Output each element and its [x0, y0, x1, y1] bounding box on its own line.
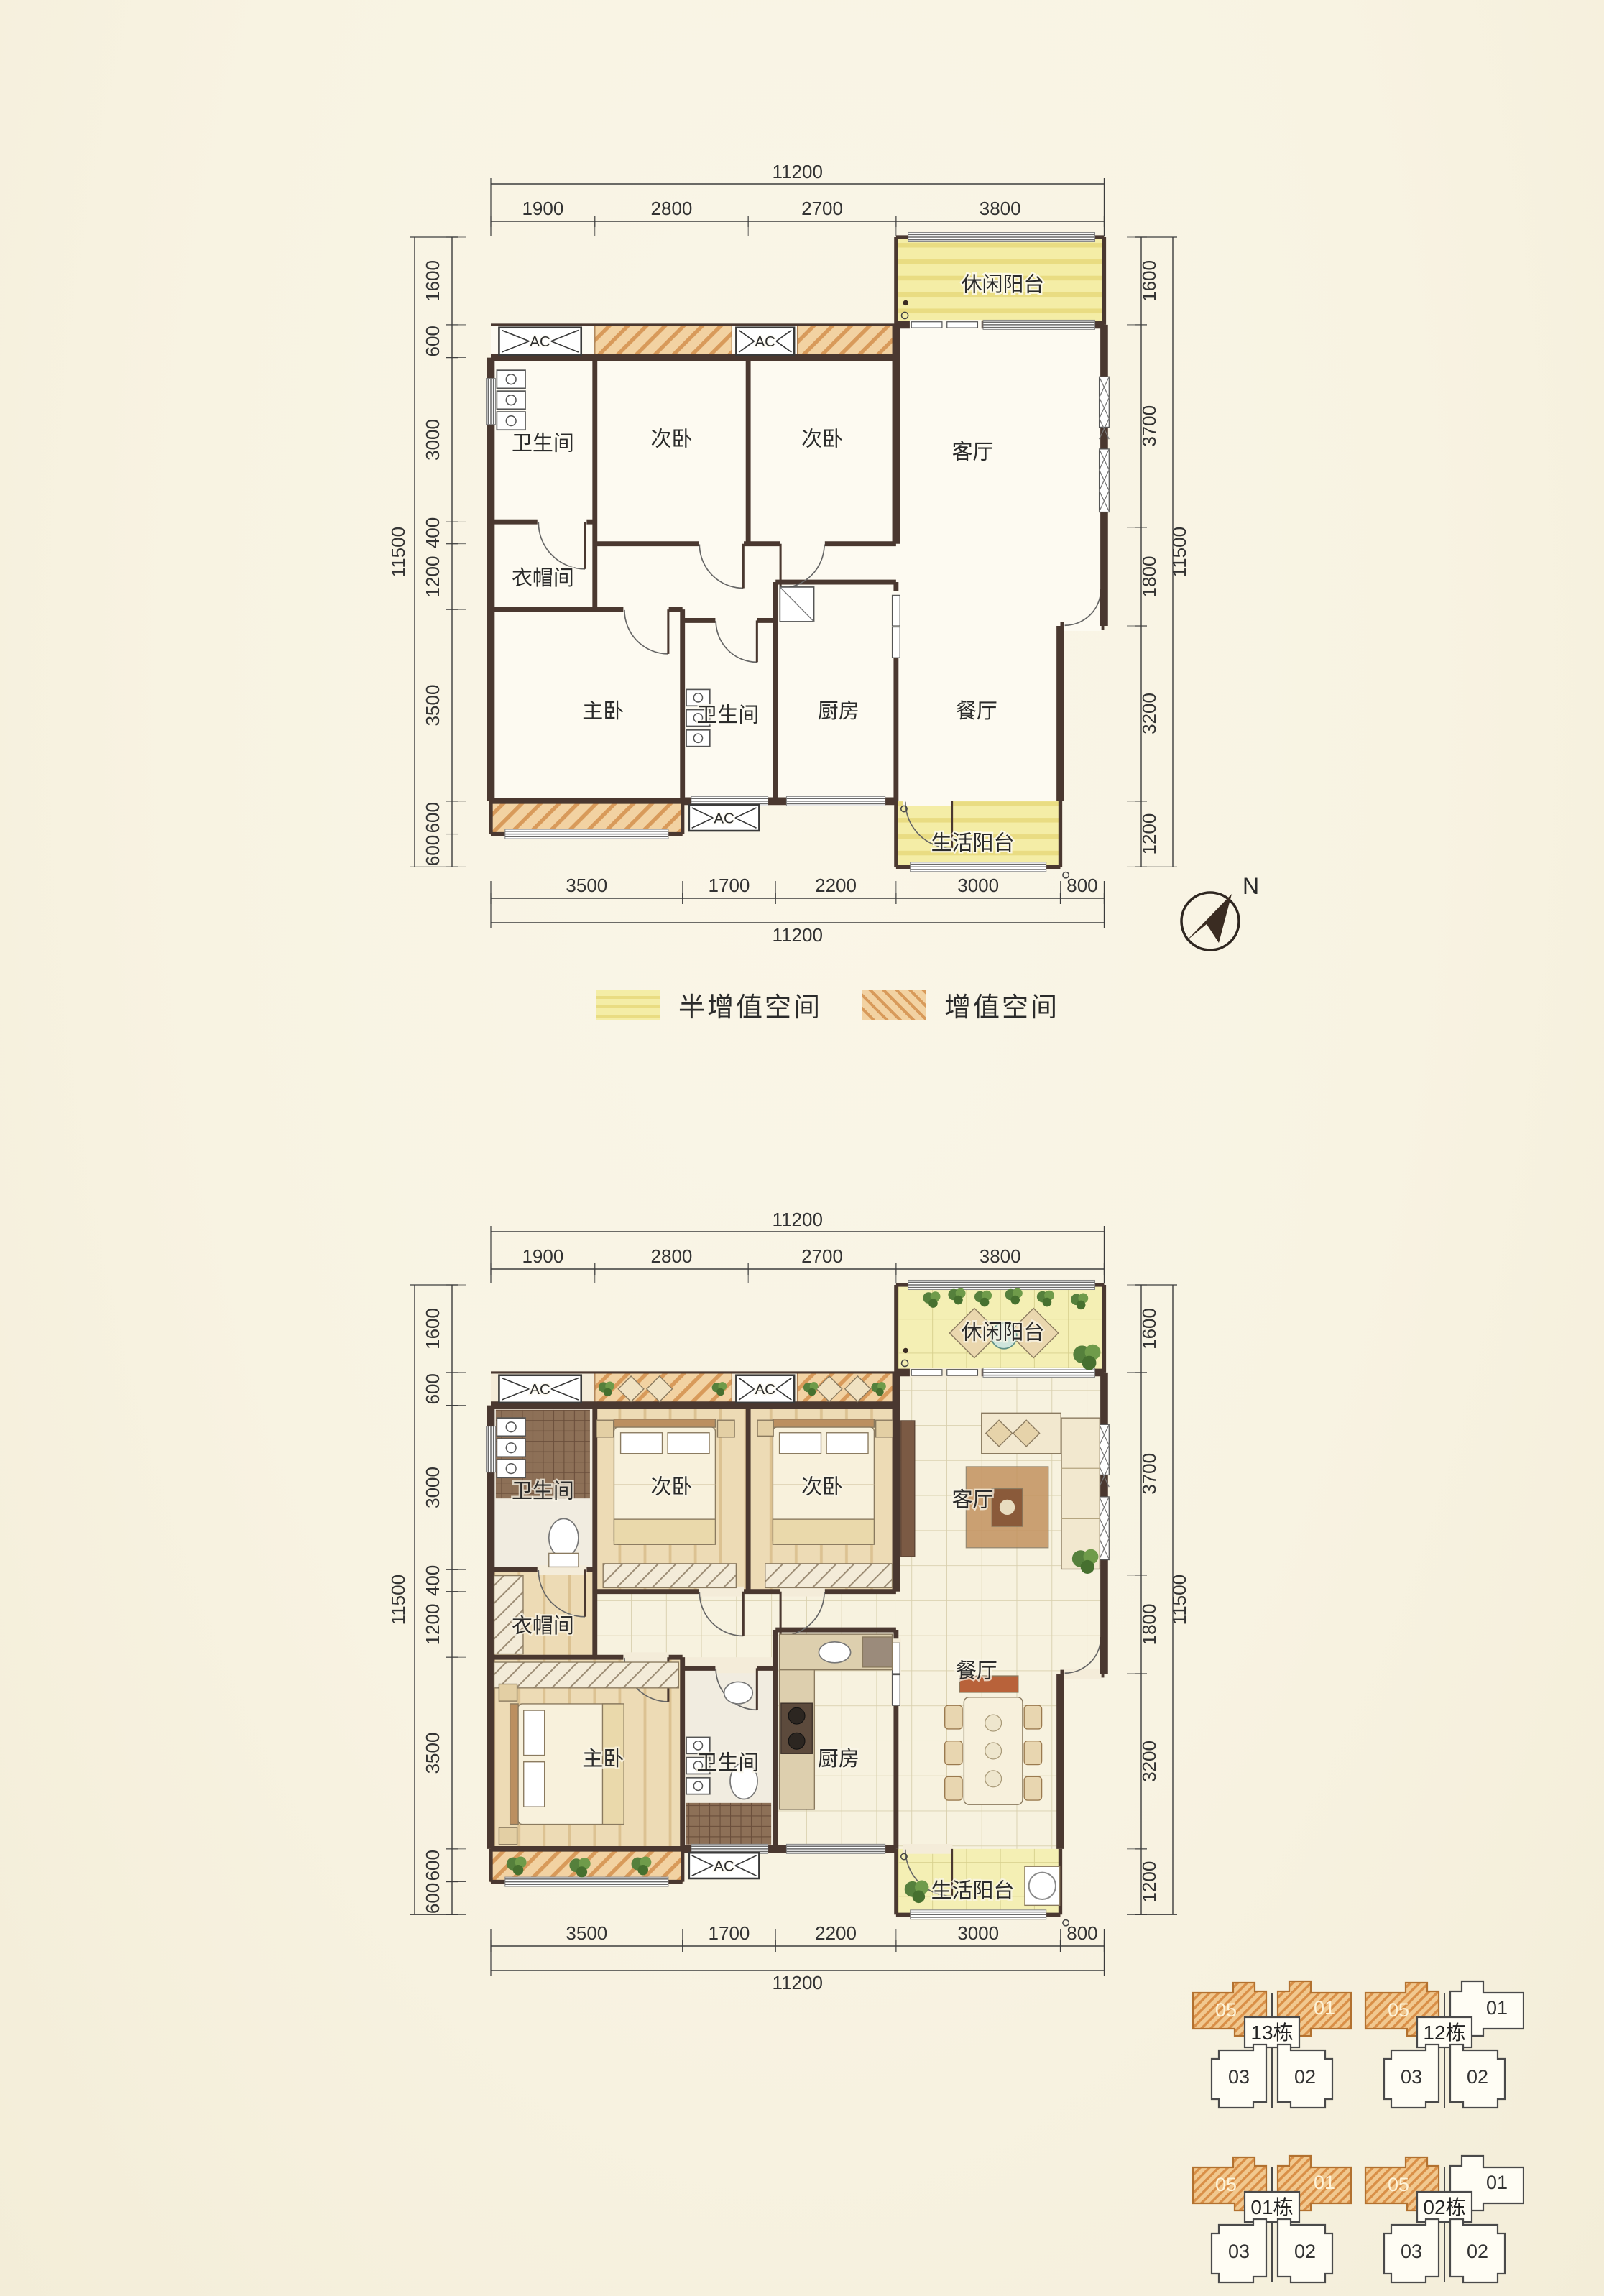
dim-left-seg: 3500 [422, 685, 443, 727]
room-label-master_bedroom: 主卧 [582, 1748, 624, 1771]
room-label-master_bedroom: 主卧 [582, 700, 624, 723]
floor-plan-furnished: ACACAC休闲阳台卫生间次卧次卧客厅衣帽间主卧卫生间厨房餐厅生活阳台11200… [304, 1163, 1209, 2004]
dim-top-seg: 1900 [522, 198, 563, 219]
legend-swatch-value [862, 990, 926, 1020]
site-building-name: 01栋 [1250, 2196, 1293, 2218]
dim-left-seg: 3000 [422, 1467, 443, 1508]
dim-top-seg: 2700 [801, 1245, 843, 1267]
dim-left-seg: 600 [422, 326, 443, 356]
furnished-plan-drawing: ACACAC休闲阳台卫生间次卧次卧客厅衣帽间主卧卫生间厨房餐厅生活阳台 [487, 1281, 1110, 1926]
dim-left-total: 11500 [387, 527, 409, 577]
ac-unit-label: AC [714, 1858, 734, 1874]
dim-right-total: 11500 [1169, 1575, 1190, 1625]
dim-top-total: 11200 [773, 1209, 823, 1230]
dim-left-seg: 400 [422, 1565, 443, 1596]
legend-label-semi-value: 半增值空间 [678, 985, 822, 1024]
north-label: N [1243, 873, 1259, 899]
site-unit-number: 03 [1228, 2066, 1250, 2088]
dim-left-seg: 600 [422, 835, 443, 866]
dim-right-seg: 1200 [1138, 1861, 1160, 1903]
dim-bottom-seg: 2200 [815, 875, 857, 896]
dim-bottom-seg: 1700 [709, 875, 750, 896]
room-label-dining_room: 餐厅 [956, 1659, 997, 1682]
room-label-leisure_balcony: 休闲阳台 [962, 273, 1045, 296]
room-label-bathroom: 卫生间 [512, 1480, 574, 1503]
value-added-bay [595, 325, 732, 358]
site-unit-number: 02 [1467, 2066, 1488, 2088]
dim-right-seg: 3700 [1138, 405, 1160, 447]
room-label-bathroom: 卫生间 [512, 432, 574, 455]
room-label-utility_balcony: 生活阳台 [931, 1880, 1015, 1903]
site-unit-number: 05 [1215, 2174, 1237, 2195]
site-unit-number: 01 [1314, 2172, 1335, 2193]
legend: 半增值空间 增值空间 [596, 982, 1059, 1028]
site-unit-number: 01 [1486, 2172, 1508, 2193]
ac-unit-label: AC [755, 1381, 775, 1398]
dim-left-seg: 1200 [422, 1604, 443, 1646]
schematic-plan-drawing: ACACAC休闲阳台卫生间次卧次卧客厅衣帽间主卧卫生间厨房餐厅生活阳台 [487, 233, 1110, 878]
dim-left-seg: 3000 [422, 419, 443, 461]
site-unit-number: 03 [1401, 2241, 1422, 2262]
dim-top-seg: 2700 [801, 198, 843, 219]
site-unit-number: 01 [1486, 1997, 1508, 2019]
room-label-secondary_bedroom: 次卧 [801, 428, 843, 451]
room-label-secondary_bedroom: 次卧 [651, 1475, 693, 1498]
ac-unit-label: AC [530, 333, 550, 350]
room-label-utility_balcony: 生活阳台 [931, 832, 1015, 855]
dim-top-seg: 1900 [522, 1245, 563, 1267]
dim-left-seg: 600 [422, 802, 443, 833]
dim-left-seg: 1600 [422, 260, 443, 302]
ac-unit-label: AC [714, 810, 734, 826]
dim-bottom-seg: 3000 [957, 1922, 999, 1944]
dim-left-seg: 600 [422, 1850, 443, 1881]
room-label-cloakroom: 衣帽间 [512, 1615, 574, 1638]
site-building-name: 02栋 [1423, 2196, 1465, 2218]
site-unit-number: 01 [1314, 1997, 1335, 2019]
room-label-kitchen: 厨房 [818, 1748, 859, 1771]
site-unit-number: 02 [1294, 2066, 1316, 2088]
room-label-bathroom: 卫生间 [697, 1751, 760, 1774]
site-building-12栋: 050112栋0302 [1365, 1981, 1524, 2108]
dim-bottom-seg: 800 [1066, 875, 1097, 896]
room-label-living_room: 客厅 [952, 441, 994, 464]
ac-unit-label: AC [530, 1381, 550, 1398]
dim-top-total: 11200 [773, 161, 823, 183]
dim-bottom-seg: 3500 [566, 1922, 607, 1944]
legend-item-semi-value-space: 半增值空间 [596, 985, 822, 1024]
dim-top-seg: 2800 [651, 1245, 693, 1267]
dim-right-seg: 1600 [1138, 260, 1160, 302]
dim-left-seg: 1200 [422, 556, 443, 598]
site-unit-number: 03 [1401, 2066, 1422, 2088]
site-plan-row-2: 050101栋0302050102栋0302 [1186, 2147, 1524, 2291]
dim-bottom-seg: 3500 [566, 875, 607, 896]
dim-top-seg: 3800 [980, 198, 1021, 219]
dim-bottom-seg: 1700 [709, 1922, 750, 1944]
dim-right-seg: 3200 [1138, 1741, 1160, 1782]
value-added-bay [798, 325, 896, 358]
dim-bottom-total: 11200 [773, 1972, 823, 1993]
legend-swatch-semi-value [596, 990, 660, 1020]
legend-item-value-space: 增值空间 [862, 985, 1059, 1024]
floor-plan-schematic: ACACAC休闲阳台卫生间次卧次卧客厅衣帽间主卧卫生间厨房餐厅生活阳台11200… [304, 115, 1209, 956]
room-label-living_room: 客厅 [952, 1489, 994, 1512]
site-unit-number: 02 [1467, 2241, 1488, 2262]
north-arrow: N [1170, 867, 1263, 960]
dim-right-seg: 3200 [1138, 693, 1160, 734]
site-unit-number: 05 [1215, 1999, 1237, 2021]
legend-label-value: 增值空间 [944, 985, 1059, 1024]
dim-bottom-total: 11200 [773, 924, 823, 946]
site-building-13栋: 050113栋0302 [1193, 1981, 1351, 2108]
room-label-bathroom: 卫生间 [697, 704, 760, 727]
dim-left-seg: 400 [422, 517, 443, 548]
room-label-leisure_balcony: 休闲阳台 [962, 1321, 1045, 1344]
dim-top-seg: 3800 [980, 1245, 1021, 1267]
site-building-name: 13栋 [1250, 2021, 1293, 2044]
dim-right-seg: 1800 [1138, 1604, 1160, 1646]
dim-top-seg: 2800 [651, 198, 693, 219]
dim-left-total: 11500 [387, 1575, 409, 1625]
dim-bottom-seg: 2200 [815, 1922, 857, 1944]
room-label-secondary_bedroom: 次卧 [801, 1475, 843, 1498]
dim-right-seg: 1800 [1138, 556, 1160, 598]
dim-right-seg: 1600 [1138, 1308, 1160, 1350]
dim-right-seg: 3700 [1138, 1453, 1160, 1495]
room-label-kitchen: 厨房 [818, 700, 859, 723]
site-unit-number: 05 [1388, 2174, 1409, 2195]
site-unit-number: 03 [1228, 2241, 1250, 2262]
ac-unit-label: AC [755, 333, 775, 350]
dim-bottom-seg: 3000 [957, 875, 999, 896]
north-needle [1186, 894, 1232, 943]
floor-plan-page: ACACAC休闲阳台卫生间次卧次卧客厅衣帽间主卧卫生间厨房餐厅生活阳台11200… [0, 0, 1604, 2296]
site-building-name: 12栋 [1423, 2021, 1465, 2044]
site-building-01栋: 050101栋0302 [1193, 2156, 1351, 2282]
room-label-dining_room: 餐厅 [956, 700, 997, 723]
room-label-secondary_bedroom: 次卧 [651, 428, 693, 451]
dim-left-seg: 3500 [422, 1733, 443, 1774]
site-unit-number: 02 [1294, 2241, 1316, 2262]
site-plan-row-1: 050113栋0302050112栋0302 [1186, 1973, 1524, 2116]
dim-left-seg: 1600 [422, 1308, 443, 1350]
site-unit-number: 05 [1388, 1999, 1409, 2021]
site-building-02栋: 050102栋0302 [1365, 2156, 1524, 2282]
room-label-cloakroom: 衣帽间 [512, 567, 574, 590]
dim-bottom-seg: 800 [1066, 1922, 1097, 1944]
dim-right-total: 11500 [1169, 527, 1190, 577]
dim-left-seg: 600 [422, 1883, 443, 1914]
dim-right-seg: 1200 [1138, 813, 1160, 855]
dim-left-seg: 600 [422, 1373, 443, 1404]
